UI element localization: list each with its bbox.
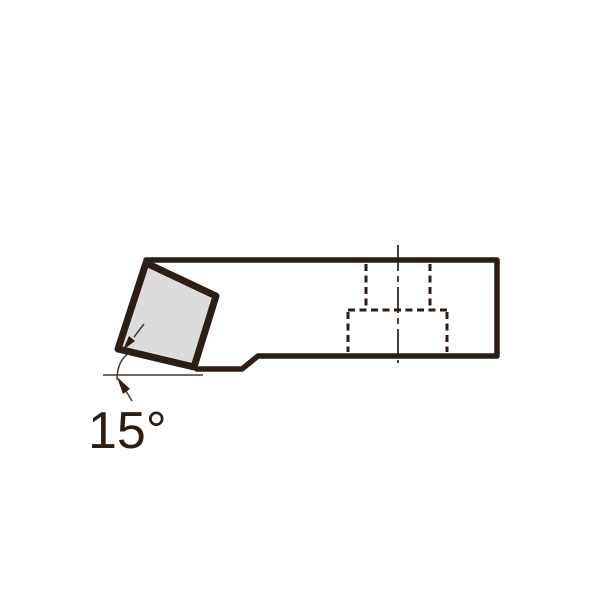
angle-label: 15° xyxy=(88,402,167,460)
lower-arrow-head-icon xyxy=(117,377,130,394)
diagram-stage: 15° xyxy=(0,0,600,600)
tool-holder-diagram: 15° xyxy=(0,0,600,600)
angle-arc xyxy=(117,353,129,380)
lower-arrow-tail xyxy=(126,391,132,401)
